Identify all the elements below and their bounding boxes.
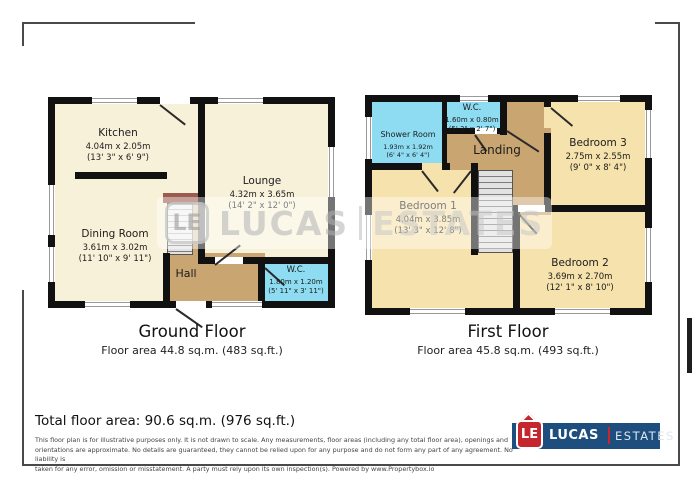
room-metric: 3.69m x 2.70m bbox=[546, 272, 613, 283]
window bbox=[48, 185, 55, 235]
room-metric: 4.04m x 2.05m bbox=[86, 142, 151, 153]
room-name: Dining Room bbox=[81, 228, 148, 240]
room-name: Bedroom 2 bbox=[551, 257, 609, 269]
room-metric: 2.75m x 2.55m bbox=[566, 152, 631, 163]
first-floor-title: First Floor bbox=[467, 322, 548, 341]
room-name: W.C. bbox=[287, 265, 306, 275]
dining-room-label: Dining Room 3.61m x 3.02m (11' 10" x 9' … bbox=[79, 222, 152, 265]
frame-top-left bbox=[22, 22, 195, 24]
cupboard-floor bbox=[507, 102, 544, 128]
watermark-divider bbox=[359, 206, 362, 240]
room-imperial: (5' 3" x 2' 7") bbox=[445, 125, 498, 134]
room-metric: 3.61m x 3.02m bbox=[79, 243, 152, 254]
window bbox=[645, 110, 652, 158]
wall bbox=[500, 95, 507, 135]
frame-right bbox=[678, 22, 680, 464]
door-opening bbox=[160, 97, 190, 104]
disclaimer-text: This floor plan is for illustrative purp… bbox=[35, 436, 515, 474]
room-imperial: (5' 11" x 3' 11") bbox=[268, 287, 324, 296]
first-floor-area: Floor area 45.8 sq.m. (493 sq.ft.) bbox=[417, 344, 599, 357]
room-imperial: (9' 0" x 8' 4") bbox=[566, 163, 631, 174]
le-watermark-icon: LE bbox=[165, 202, 209, 244]
room-imperial: (6' 4" x 6' 4") bbox=[380, 151, 435, 159]
total-floor-area: Total floor area: 90.6 sq.m. (976 sq.ft.… bbox=[35, 413, 295, 429]
frame-top-right bbox=[655, 22, 680, 24]
disclaimer-line: taken for any error, omission or misstat… bbox=[35, 465, 515, 475]
room-metric: 1.80m x 1.20m bbox=[268, 278, 324, 287]
lucas-estates-logo: LE LUCAS ESTATES bbox=[512, 413, 662, 453]
watermark-estates: ESTATES bbox=[372, 204, 544, 243]
ground-floor-title: Ground Floor bbox=[139, 322, 246, 341]
kitchen-label: Kitchen 4.04m x 2.05m (13' 3" x 6' 9") bbox=[86, 121, 151, 164]
window bbox=[212, 301, 262, 308]
room-imperial: (13' 3" x 6' 9") bbox=[86, 153, 151, 164]
wall bbox=[544, 95, 551, 107]
logo-separator bbox=[608, 427, 610, 444]
hall-label: Hall bbox=[175, 267, 196, 281]
wall bbox=[372, 163, 422, 170]
wc-first-label: W.C. 1.60m x 0.80m (5' 3" x 2' 7") bbox=[445, 95, 498, 134]
bedroom2-label: Bedroom 2 3.69m x 2.70m (12' 1" x 8' 10"… bbox=[546, 251, 613, 294]
room-name: W.C. bbox=[463, 103, 482, 113]
frame-left-lower bbox=[22, 290, 24, 466]
ground-floor-area: Floor area 44.8 sq.m. (483 sq.ft.) bbox=[101, 344, 283, 357]
wall bbox=[442, 163, 450, 170]
window bbox=[578, 95, 620, 102]
window bbox=[92, 97, 137, 104]
wc-ground-label: W.C. 1.80m x 1.20m (5' 11" x 3' 11") bbox=[268, 257, 324, 296]
room-name: Kitchen bbox=[98, 127, 137, 139]
wall bbox=[163, 253, 170, 308]
room-name: Shower Room bbox=[380, 130, 435, 139]
window bbox=[645, 228, 652, 282]
logo-lucas-text: LUCAS bbox=[549, 428, 599, 443]
room-name: Bedroom 3 bbox=[569, 137, 627, 149]
floorplan-page: Kitchen 4.04m x 2.05m (13' 3" x 6' 9") L… bbox=[0, 0, 700, 490]
window bbox=[555, 308, 610, 315]
window bbox=[85, 301, 130, 308]
room-imperial: (11' 10" x 9' 11") bbox=[79, 254, 152, 265]
bedroom3-label: Bedroom 3 2.75m x 2.55m (9' 0" x 8' 4") bbox=[566, 131, 631, 174]
window bbox=[328, 147, 335, 197]
right-edge-bar bbox=[687, 318, 692, 373]
watermark-lucas: LUCAS bbox=[219, 204, 349, 243]
door-opening bbox=[176, 301, 206, 308]
frame-left-upper bbox=[22, 22, 24, 46]
landing-label: Landing bbox=[473, 143, 521, 159]
window bbox=[410, 308, 465, 315]
disclaimer-line: orientations are approximate. No details… bbox=[35, 446, 515, 465]
window bbox=[218, 97, 263, 104]
room-name: Lounge bbox=[243, 175, 282, 187]
window bbox=[48, 247, 55, 282]
window bbox=[365, 117, 372, 159]
room-metric: 1.93m x 1.92m bbox=[380, 143, 435, 151]
lucas-estates-watermark: LE LUCAS ESTATES bbox=[157, 197, 552, 249]
room-imperial: (12' 1" x 8' 10") bbox=[546, 283, 613, 294]
room-metric: 1.60m x 0.80m bbox=[445, 116, 498, 125]
logo-estates-text: ESTATES bbox=[615, 429, 675, 443]
disclaimer-line: This floor plan is for illustrative purp… bbox=[35, 436, 515, 446]
wall bbox=[75, 172, 167, 179]
le-crest-icon: LE bbox=[516, 420, 543, 449]
shower-room-label: Shower Room 1.93m x 1.92m (6' 4" x 6' 4"… bbox=[380, 122, 435, 160]
